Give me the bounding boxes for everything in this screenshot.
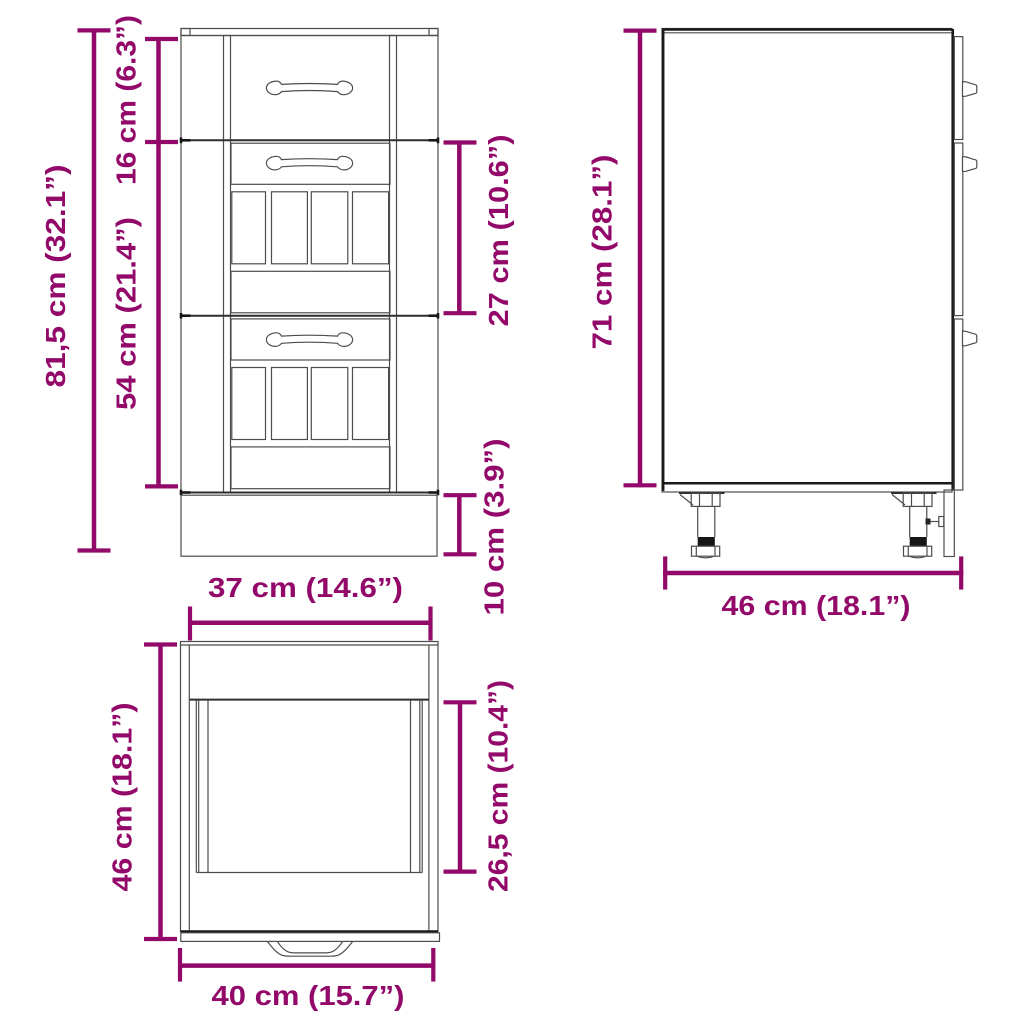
svg-text:37 cm (14.6”): 37 cm (14.6”) [208,572,403,603]
svg-text:16 cm (6.3”): 16 cm (6.3”) [111,15,142,185]
svg-text:46 cm (18.1”): 46 cm (18.1”) [107,703,138,892]
svg-text:40 cm (15.7”): 40 cm (15.7”) [212,980,405,1011]
svg-text:27 cm (10.6”): 27 cm (10.6”) [483,135,514,327]
svg-text:46 cm (18.1”): 46 cm (18.1”) [722,590,911,621]
svg-text:54 cm (21.4”): 54 cm (21.4”) [111,217,142,410]
svg-text:71 cm (28.1”): 71 cm (28.1”) [587,155,618,350]
svg-text:10 cm (3.9”): 10 cm (3.9”) [479,439,510,616]
svg-text:26,5 cm (10.4”): 26,5 cm (10.4”) [483,680,514,892]
svg-text:81,5 cm (32.1”): 81,5 cm (32.1”) [40,165,71,388]
